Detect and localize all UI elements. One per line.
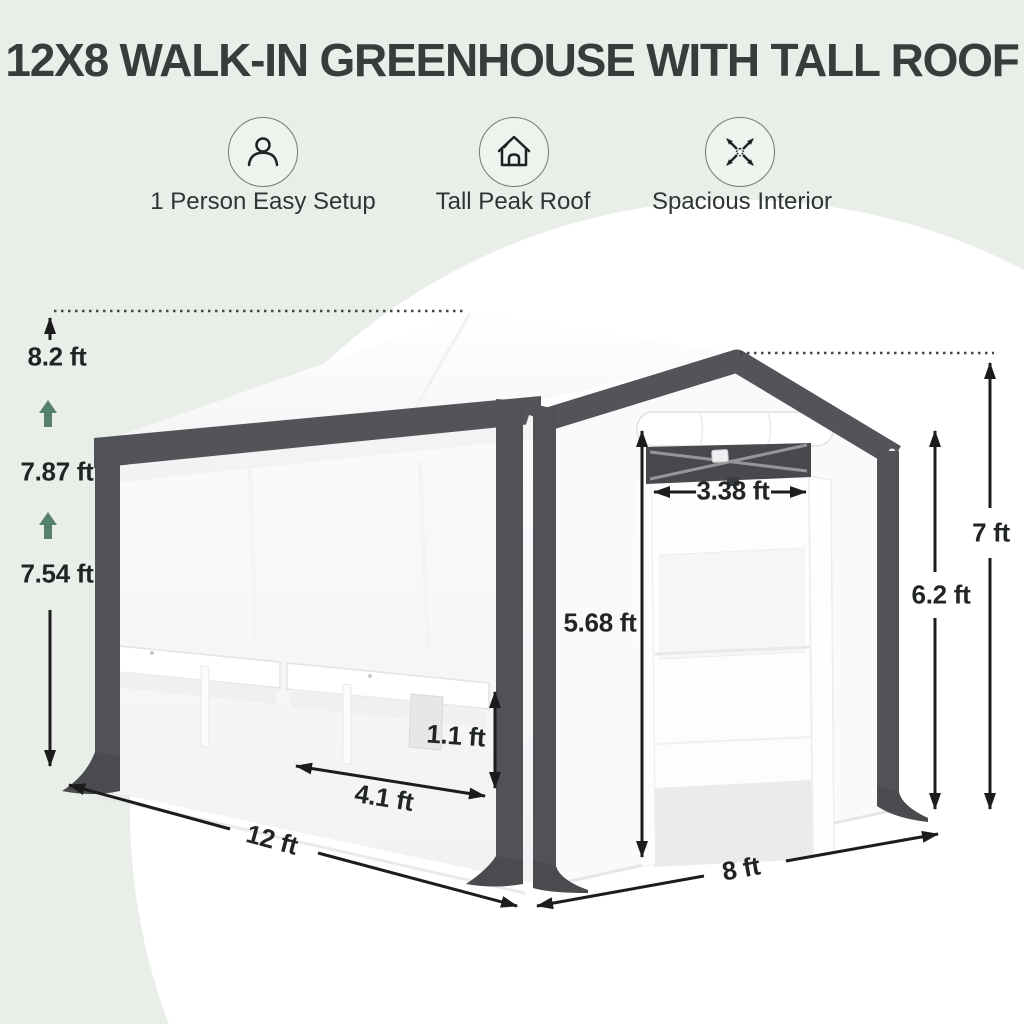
dim-door-height: 5.68 ft — [563, 608, 636, 639]
interior-back-window — [660, 548, 804, 659]
post-gable-right — [877, 451, 899, 794]
feature-label-easy-setup: 1 Person Easy Setup — [150, 188, 375, 216]
post-gable-left — [533, 404, 556, 868]
person-icon-glyph — [243, 132, 283, 172]
window-tie-strap — [343, 684, 351, 764]
feature-label-spacious-interior: Spacious Interior — [652, 188, 832, 216]
dim-door-width: 3.38 ft — [696, 476, 769, 507]
door-buckle — [712, 449, 729, 462]
product-infographic: 12X8 WALK-IN GREENHOUSE WITH TALL ROOF — [0, 0, 1024, 1024]
window-tie-strap — [201, 666, 209, 747]
dim-eave-height: 7.54 ft — [20, 559, 93, 590]
dim-peak-height: 8.2 ft — [28, 342, 87, 373]
expand-arrows-icon-glyph — [720, 132, 760, 172]
page-title: 12X8 WALK-IN GREENHOUSE WITH TALL ROOF — [0, 33, 1024, 87]
dim-window-height: 1.1 ft — [426, 718, 487, 753]
post-front-right — [496, 399, 523, 864]
dim-frame-height: 7.87 ft — [20, 457, 93, 488]
dim-gable-height: 7 ft — [972, 518, 1010, 549]
house-icon — [479, 117, 549, 187]
rolled-door-fabric — [637, 412, 833, 446]
interior-floor — [655, 780, 813, 866]
person-icon — [228, 117, 298, 187]
post-front-left — [95, 436, 120, 762]
expand-arrows-icon — [705, 117, 775, 187]
dim-width: 8 ft — [720, 850, 763, 887]
feature-label-tall-peak-roof: Tall Peak Roof — [436, 188, 591, 216]
dim-wall-height: 6.2 ft — [912, 580, 971, 611]
house-icon-glyph — [494, 132, 534, 172]
green-up-arrow — [39, 512, 57, 539]
foot-front-left — [62, 752, 120, 794]
door-jamb-right — [809, 476, 834, 857]
green-up-arrow — [39, 400, 57, 427]
window-hook — [150, 651, 154, 655]
window-hook — [368, 674, 372, 678]
